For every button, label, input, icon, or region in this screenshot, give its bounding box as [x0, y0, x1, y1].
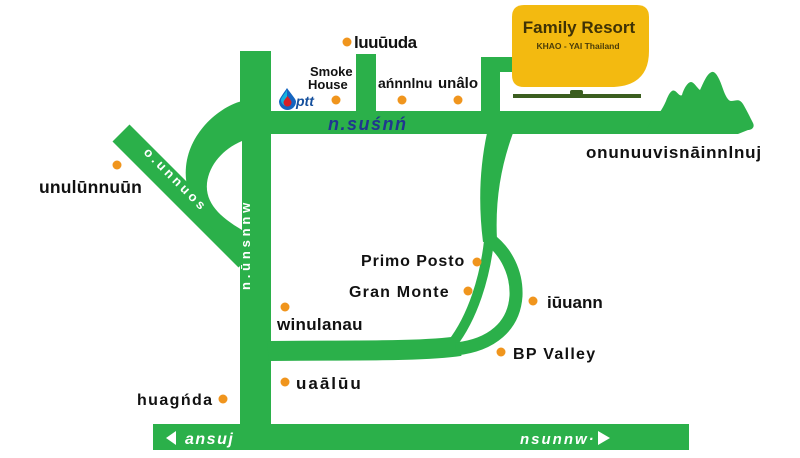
svg-text:BP Valley: BP Valley — [513, 346, 596, 363]
svg-text:uaālūu: uaālūu — [296, 374, 363, 393]
svg-text:onunuuvisnāinnlnuj: onunuuvisnāinnlnuj — [586, 143, 762, 162]
svg-text:n.suśnń: n.suśnń — [328, 114, 408, 134]
svg-text:huagńda: huagńda — [137, 392, 213, 409]
svg-text:n.ūnsnnw: n.ūnsnnw — [238, 199, 253, 290]
svg-text:luuūuda: luuūuda — [354, 33, 418, 52]
svg-text:Family Resort: Family Resort — [523, 18, 636, 37]
svg-text:winulanau: winulanau — [276, 315, 363, 334]
svg-text:unulūnnuūn: unulūnnuūn — [39, 177, 142, 197]
svg-text:ańnnlnu: ańnnlnu — [378, 75, 432, 91]
svg-text:ptt: ptt — [295, 93, 315, 109]
svg-text:Gran Monte: Gran Monte — [349, 284, 450, 301]
svg-text:House: House — [308, 77, 348, 92]
svg-text:Primo Posto: Primo Posto — [361, 253, 465, 270]
svg-text:unâlo: unâlo — [438, 75, 478, 92]
svg-text:ansuj: ansuj — [185, 431, 234, 448]
svg-text:KHAO - YAI Thailand: KHAO - YAI Thailand — [536, 41, 619, 51]
svg-text:nsunnw·: nsunnw· — [520, 431, 596, 448]
svg-text:iūuann: iūuann — [547, 293, 603, 312]
